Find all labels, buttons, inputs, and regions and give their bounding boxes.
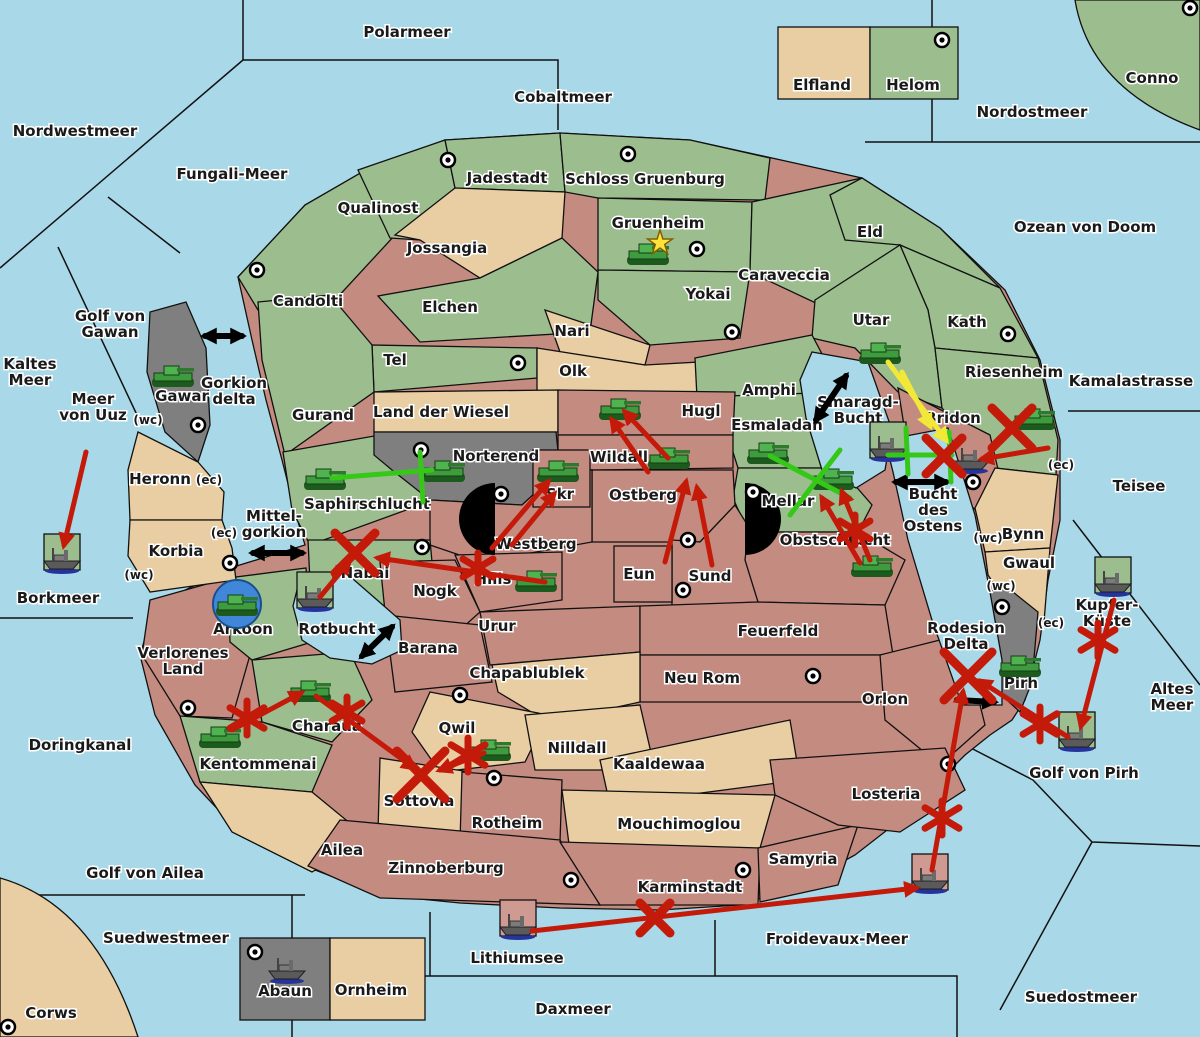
support-bar: [906, 428, 908, 474]
label-corws: Corws: [25, 1004, 77, 1022]
label-land-der-wiesel: Land der Wiesel: [373, 403, 509, 421]
label-nogk: Nogk: [413, 582, 458, 600]
label-chapablublek: Chapablublek: [469, 664, 585, 682]
label-ornheim: Ornheim: [335, 981, 407, 999]
label-cobaltmeer: Cobaltmeer: [514, 88, 612, 106]
supply-center-dot: [746, 485, 760, 499]
label-yokai: Yokai: [684, 285, 730, 303]
label-sund: Sund: [689, 567, 732, 585]
label-saphirschlucht: Saphirschlucht: [304, 495, 430, 513]
supply-center-dot: [223, 556, 237, 570]
label-conno: Conno: [1126, 69, 1179, 87]
supply-center-dot: [494, 487, 508, 501]
label-kentommenai: Kentommenai: [199, 755, 316, 773]
label-amphi: Amphi: [742, 381, 796, 399]
coast-tag-ec: (ec): [1048, 458, 1074, 472]
label-borkmeer: Borkmeer: [17, 589, 100, 607]
territory-ornheim[interactable]: [330, 938, 425, 1020]
label-tel: Tel: [383, 351, 407, 369]
label-gawar: Gawar: [155, 387, 209, 405]
label-eld: Eld: [857, 223, 883, 241]
supply-center-dot: [191, 418, 205, 432]
label-obstschlucht: Obstschlucht: [780, 531, 891, 549]
label-froidevaux-meer: Froidevaux-Meer: [766, 930, 909, 948]
label-teisee: Teisee: [1113, 477, 1166, 495]
label-jossangia: Jossangia: [406, 239, 488, 257]
label-heronn: Heronn: [129, 470, 191, 488]
label-nari: Nari: [554, 322, 589, 340]
label-neu-rom: Neu Rom: [664, 669, 740, 687]
supply-center-dot: [453, 688, 467, 702]
label-kaaldewaa: Kaaldewaa: [613, 755, 705, 773]
label-zinnoberburg: Zinnoberburg: [388, 859, 504, 877]
supply-center-dot: [248, 945, 262, 959]
label-gwaul: Gwaul: [1003, 554, 1055, 572]
map-canvas: NordwestmeerPolarmeerCobaltmeerNordostme…: [0, 0, 1200, 1037]
label-mittel-gorkion: Mittel-gorkion: [242, 507, 307, 541]
supply-center-dot: [564, 873, 578, 887]
supply-center-dot: [935, 33, 949, 47]
label-polarmeer: Polarmeer: [363, 23, 451, 41]
support-bar: [420, 452, 423, 502]
label-orlon: Orlon: [862, 690, 908, 708]
label-urur: Urur: [478, 617, 516, 635]
label-nordostmeer: Nordostmeer: [977, 103, 1088, 121]
supply-center-dot: [1183, 1, 1197, 15]
label-ostberg: Ostberg: [609, 486, 677, 504]
label-barana: Barana: [398, 639, 458, 657]
label-suedostmeer: Suedostmeer: [1025, 988, 1138, 1006]
label-helom: Helom: [886, 76, 940, 94]
supply-center-dot: [511, 356, 525, 370]
label-olk: Olk: [559, 362, 588, 380]
label-feuerfeld: Feuerfeld: [738, 622, 819, 640]
label-nordwestmeer: Nordwestmeer: [13, 122, 138, 140]
supply-center-dot: [966, 475, 980, 489]
coast-tag-ec: (ec): [196, 473, 222, 487]
supply-center-dot: [250, 263, 264, 277]
label-qwil: Qwil: [439, 719, 476, 737]
label-candolti: Candolti: [273, 292, 343, 310]
label-eun: Eun: [623, 565, 655, 583]
label-daxmeer: Daxmeer: [535, 1000, 611, 1018]
label-hugl: Hugl: [681, 402, 720, 420]
supply-center-dot: [806, 669, 820, 683]
supply-center-dot: [415, 540, 429, 554]
coast-tag-wc: (wc): [986, 579, 1015, 593]
coast-tag-ec: (ec): [211, 526, 237, 540]
label-suedwestmeer: Suedwestmeer: [103, 929, 229, 947]
label-losteria: Losteria: [852, 785, 921, 803]
supply-center-dot: [690, 242, 704, 256]
label-nilldall: Nilldall: [547, 739, 606, 757]
territory-gruenheim[interactable]: [598, 198, 752, 272]
label-bynn: Bynn: [1002, 525, 1045, 543]
supply-center-dot: [487, 771, 501, 785]
label-mouchimoglou: Mouchimoglou: [617, 815, 740, 833]
supply-center-dot: [181, 701, 195, 715]
label-kath: Kath: [947, 313, 987, 331]
supply-center-dot: [736, 863, 750, 877]
label-kaltes-meer: KaltesMeer: [3, 355, 56, 389]
label-samyria: Samyria: [769, 850, 838, 868]
label-korbia: Korbia: [148, 542, 203, 560]
label-schloss-gruenburg: Schloss Gruenburg: [565, 170, 725, 188]
label-altes-meer: AltesMeer: [1150, 680, 1193, 714]
label-caraveccia: Caraveccia: [738, 266, 830, 284]
coast-tag-wc: (wc): [133, 413, 162, 427]
label-ailea: Ailea: [321, 841, 363, 859]
label-rotheim: Rotheim: [472, 814, 543, 832]
supply-center-dot: [621, 147, 635, 161]
label-karminstadt: Karminstadt: [638, 878, 743, 896]
supply-center-dot: [676, 583, 690, 597]
label-golf-von-pirh: Golf von Pirh: [1029, 764, 1139, 782]
coast-tag-wc: (wc): [973, 531, 1002, 545]
label-abaun: Abaun: [258, 982, 312, 1000]
coast-tag-wc: (wc): [124, 568, 153, 582]
label-westberg: Westberg: [495, 535, 576, 553]
label-norterend: Norterend: [453, 447, 540, 465]
label-esmaladan: Esmaladan: [731, 416, 823, 434]
label-ozean-von-doom: Ozean von Doom: [1014, 218, 1156, 236]
label-jadestadt: Jadestadt: [466, 169, 548, 187]
label-qualinost: Qualinost: [338, 199, 419, 217]
supply-center-dot: [681, 533, 695, 547]
label-kamalastrasse: Kamalastrasse: [1069, 372, 1193, 390]
supply-center-dot: [995, 600, 1009, 614]
label-riesenheim: Riesenheim: [965, 363, 1063, 381]
game-map: NordwestmeerPolarmeerCobaltmeerNordostme…: [0, 0, 1200, 1037]
label-fungali-meer: Fungali-Meer: [177, 165, 288, 183]
label-utar: Utar: [853, 311, 890, 329]
label-golf-von-gawan: Golf vonGawan: [75, 307, 145, 341]
label-rotbucht: Rotbucht: [298, 620, 375, 638]
supply-center-dot: [725, 325, 739, 339]
label-golf-von-ailea: Golf von Ailea: [86, 864, 204, 882]
coast-tag-ec: (ec): [1038, 616, 1064, 630]
label-lithiumsee: Lithiumsee: [470, 949, 563, 967]
label-elchen: Elchen: [422, 298, 478, 316]
supply-center-dot: [1001, 327, 1015, 341]
label-gruenheim: Gruenheim: [612, 214, 705, 232]
label-gurand: Gurand: [292, 406, 354, 424]
supply-center-dot: [441, 153, 455, 167]
label-doringkanal: Doringkanal: [29, 736, 132, 754]
supply-center-dot: [1, 1020, 15, 1034]
label-elfland: Elfland: [793, 76, 851, 94]
